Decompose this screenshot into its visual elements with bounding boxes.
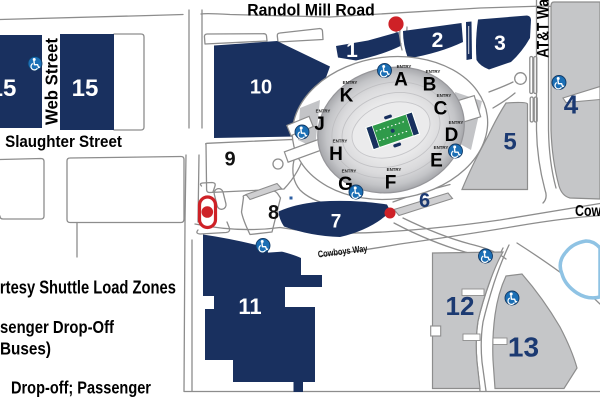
svg-text:1: 1 [346,39,358,62]
svg-text:15: 15 [0,75,16,102]
svg-text:8: 8 [268,202,279,224]
svg-text:E: E [430,151,443,172]
svg-text:ENTRY: ENTRY [342,169,357,174]
svg-text:AT&T Wa: AT&T Wa [534,0,553,58]
svg-text:13: 13 [508,332,539,363]
svg-text:ENTRY: ENTRY [397,64,412,69]
svg-text:C: C [434,99,448,120]
svg-text:11: 11 [238,294,261,319]
svg-text:Courtesy Shuttle Load Zones: Courtesy Shuttle Load Zones [0,278,176,298]
svg-text:ENTRY: ENTRY [434,145,449,150]
svg-text:ENTRY: ENTRY [437,93,452,98]
svg-text:Slaughter Street: Slaughter Street [5,132,122,151]
svg-text:12: 12 [446,291,475,321]
svg-text:ENTRY: ENTRY [387,167,402,172]
svg-text:7: 7 [331,212,342,233]
svg-text:ENTRY: ENTRY [449,120,464,125]
svg-text:9: 9 [224,149,235,171]
svg-text:Randol Mill Road: Randol Mill Road [247,1,374,20]
svg-text:10: 10 [250,77,272,99]
svg-text:4: 4 [564,90,579,120]
svg-text:5: 5 [503,129,516,156]
svg-text:Passenger Drop-Off: Passenger Drop-Off [0,318,114,338]
svg-text:F: F [385,173,397,194]
svg-text:Web Street: Web Street [41,38,62,125]
svg-text:B: B [423,75,437,96]
svg-text:ENTRY: ENTRY [333,139,348,144]
svg-text:2: 2 [432,29,444,52]
svg-text:Drop-off; Passenger: Drop-off; Passenger [11,378,152,398]
svg-text:J: J [314,114,325,135]
svg-text:15: 15 [72,75,99,102]
svg-text:A: A [394,70,408,91]
svg-text:H: H [329,144,343,165]
svg-text:D: D [445,125,459,146]
svg-text:ENTRY: ENTRY [426,69,441,74]
svg-text:ENTRY: ENTRY [316,109,331,114]
svg-text:K: K [340,86,354,107]
svg-text:Cowboys: Cowboys [575,202,600,220]
svg-text:ENTRY: ENTRY [343,80,358,85]
svg-text:(Buses): (Buses) [0,338,51,358]
svg-text:6: 6 [419,190,430,212]
svg-text:3: 3 [494,32,506,55]
